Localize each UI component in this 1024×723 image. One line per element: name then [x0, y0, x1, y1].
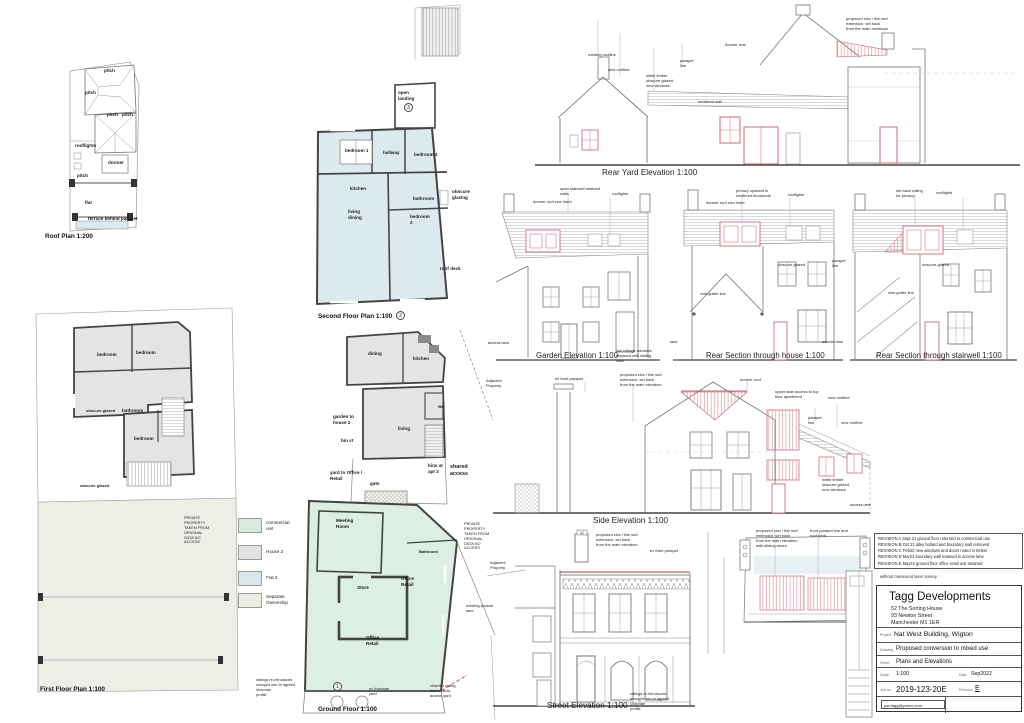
label-gate: gate [370, 481, 379, 487]
legend-label-separate: Separate Ownership [266, 594, 288, 605]
label-bin-st: bin st [341, 438, 353, 444]
label-proposed-zinc: proposed zinc / flat roof extension, set… [846, 16, 888, 31]
divider [877, 627, 1021, 628]
label-living: living [398, 426, 410, 432]
label-access-lane: access lane [822, 339, 843, 344]
street-elevation-drawing [485, 528, 700, 713]
divider [877, 681, 1021, 682]
ground-floor-title: Ground Floor 1:100 [318, 706, 377, 713]
label-proposed-zinc: proposed zinc / flat roof extension, set… [596, 532, 638, 547]
label-frontage: ex frontage yard [369, 686, 389, 696]
label-ex-front-parapet: ex front parapet [650, 548, 678, 553]
label-bathroom: bathroom [413, 196, 434, 202]
label-bedroom1: bedroom 1 [345, 148, 368, 154]
label-kitchen: kitchen [413, 356, 429, 362]
label-new-roofline: new roofline [841, 420, 863, 425]
label-bathroom: bathroom [122, 408, 143, 414]
revision-label: Revision [959, 688, 973, 692]
rear-section-house-drawing [668, 182, 848, 367]
revision-notes: REVISION A Sept 21 ground floor returned… [874, 533, 1023, 569]
divider [877, 655, 1021, 656]
garden-elevation-title: Garden Elevation 1:100 [536, 351, 618, 360]
sheet-value: Plans and Elevations [896, 659, 952, 665]
label-dormer-roof: dormer roof [740, 377, 761, 382]
label-rooflights: rooflights [936, 190, 952, 195]
plan-number-marker: 1 [333, 682, 342, 691]
label-obscure-glazed: obscure glazed [86, 408, 115, 413]
project-value: Nat West Building, Wigton [894, 631, 973, 638]
date-value: Sep2022 [971, 671, 992, 677]
label-terrace: terrace behind parapet [88, 216, 138, 222]
label-white-timber: white timber obscure glazed new windows [822, 477, 849, 492]
second-floor-title: Second Floor Plan 1:100 [318, 313, 392, 320]
label-obscure-glazing: obscure glazing [452, 189, 470, 200]
label-bedroom: bedroom [97, 352, 117, 358]
rear-section-stairwell-drawing [845, 182, 1024, 367]
label-access-lane: access lane [488, 340, 509, 345]
label-parapet-line: parapet line [832, 258, 846, 268]
label-pitch: pitch [122, 112, 133, 118]
label-private-property: PRIVATE PROPERTY TAKEN FROM ORIGINAL DAT… [184, 516, 209, 545]
label-dormer-rear: dormer rear [725, 42, 746, 47]
revision-item: REVISION E May22 ground floor office ret… [878, 561, 1019, 567]
label-pitch: pitch [107, 112, 118, 118]
label-white-timber: white timber obscure glazed new windows [646, 73, 673, 88]
label-privacy-upstand: privacy upstand in rendered blockwork [736, 188, 771, 198]
roof-plan-title: Roof Plan 1:200 [45, 233, 93, 240]
legend-swatch-commercial [238, 518, 262, 533]
email-value: pat.tagg@yahoo.com [884, 703, 922, 708]
label-kitchen: kitchen [350, 186, 366, 192]
label-bedroom: bedroom [134, 436, 154, 442]
street-elevation-title: Street Elevation 1:100 [547, 701, 628, 710]
scale-value: 1:100 [896, 671, 909, 677]
label-ex-front-parapet: ex front parapet [555, 376, 583, 381]
legend-swatch-house2 [238, 545, 262, 560]
company-address: 52 The Sorting House 93 Newton Street Ma… [891, 606, 942, 627]
second-floor-plan-drawing [300, 0, 475, 325]
label-bins: bins at apt 3 [428, 463, 443, 474]
rear-yard-elevation-drawing [530, 5, 1024, 180]
date-label: Date [959, 673, 967, 677]
rear-section-house-title: Rear Section through house 1:100 [706, 351, 825, 360]
label-parapet-line: parapet line [808, 415, 822, 425]
label-garden-footnote: low cottage windows replaced with slidin… [616, 349, 652, 364]
legend-label-commercial: commercial unit [266, 520, 289, 531]
label-wc: wc [438, 404, 444, 410]
label-rendered-wall: rendered wall [698, 99, 722, 104]
label-pitch: pitch [77, 173, 88, 179]
side-elevation-drawing [485, 362, 875, 527]
label-chamfer: chamfer railing line to allow access yar… [430, 684, 456, 699]
label-private-property: PRIVATE PROPERTY TAKEN FROM ORIGINAL DAT… [464, 522, 489, 551]
label-dormer: dormer [108, 160, 124, 166]
company-name: Tagg Developments [889, 591, 991, 603]
label-adjacent-property: Adjacent Property [490, 560, 506, 570]
job-number: 2019-123-20E [896, 685, 947, 694]
project-label: Project [880, 633, 891, 637]
first-floor-plan-drawing [28, 302, 240, 697]
label-obscure-glazed: obscure glazed [80, 483, 109, 488]
label-parapet-line: parapet line [680, 58, 694, 68]
label-bathroom: Bathroom [419, 549, 438, 554]
first-floor-title: First Floor Plan 1:100 [40, 686, 105, 693]
drawing-value: Proposed conversion to mixed use [896, 646, 988, 652]
garden-elevation-drawing [488, 182, 668, 367]
label-obscure-glazed: obscure glazed [778, 262, 805, 267]
label-new-roofline: new roofline [828, 395, 850, 400]
label-proposed-zinc-sliding: proposed zinc / flat roof extension, set… [756, 528, 798, 548]
divider [877, 696, 1021, 697]
label-rear-gutter: rear gutter line [888, 290, 914, 295]
label-open-stairwell: open stairwell retained walls [560, 186, 600, 196]
sheet-label: Sheet [880, 661, 889, 665]
label-roof-deck: roof deck [440, 266, 461, 272]
label-proposed-zinc: proposed zinc / flat roof extension, set… [620, 372, 662, 387]
drawing-label: Drawing [880, 648, 893, 652]
label-railings: railings re-introduced wrought iron to a… [256, 678, 295, 698]
revision-value: E [975, 685, 980, 692]
label-set-back-railing: set back railing for privacy [896, 188, 923, 198]
label-pitch: pitch [85, 90, 96, 96]
label-upper-stair: upper stair access to top floor apartmen… [775, 389, 819, 399]
label-existing-access: existing access lane [466, 603, 493, 613]
label-living-dining: living dining [348, 209, 362, 220]
legend-label-flat3: Flat 3 [266, 575, 278, 581]
label-obscure-glazed: obscure glazed [922, 262, 949, 267]
drawing-sheet: pitch pitch pitch pitch rooflights dorme… [0, 0, 1024, 723]
label-meeting-room: Meeting Room [336, 518, 353, 529]
label-new-roofline: new roofline [608, 67, 630, 72]
job-label: Job no [880, 688, 891, 692]
label-garden-house2: garden to house 2 [333, 414, 354, 425]
label-dining: dining [368, 351, 382, 357]
label-flat: flat [85, 200, 92, 206]
label-rooflights: rooflights [75, 143, 96, 149]
landing-number-marker: 3 [404, 103, 413, 112]
label-rooflights: rooflights [612, 191, 628, 196]
label-existing-roofline: existing roofline [588, 52, 616, 57]
email-box: pat.tagg@yahoo.com [881, 700, 945, 709]
rear-section-stairwell-title: Rear Section through stairwell 1:100 [876, 351, 1002, 360]
label-access-lane: access lane [850, 502, 871, 507]
label-yard-office: yard to Office / Retail [330, 470, 362, 481]
divider [945, 696, 946, 713]
label-adjacent-property: Adjacent Property [486, 378, 502, 388]
label-bedroom3: bedroom 3 [414, 152, 437, 158]
plan-number-marker: 2 [396, 311, 405, 320]
scale-label: Scale [880, 673, 889, 677]
rear-yard-elevation-title: Rear Yard Elevation 1:100 [602, 168, 697, 177]
lane-detail-drawing [845, 570, 873, 718]
label-office-retail: Office Retail [366, 635, 379, 646]
label-front-parapet: front parapet line and roof deck [810, 528, 848, 538]
label-bedroom2: bedroom 2 [410, 214, 430, 225]
label-rear-gutter: rear gutter line [700, 291, 726, 296]
survey-note: without measured laser survey [880, 574, 937, 579]
side-elevation-title: Side Elevation 1:100 [593, 516, 668, 525]
divider [877, 642, 1021, 643]
label-dormer-roof: dormer roof zinc lined [533, 199, 571, 204]
label-lane: lane [670, 339, 678, 344]
label-open-landing: open landing [398, 90, 414, 101]
title-block: Tagg Developments 52 The Sorting House 9… [876, 585, 1022, 712]
label-bedroom: bedroom [136, 350, 156, 356]
label-pitch: pitch [104, 68, 115, 74]
label-hallway: hallway [383, 150, 400, 156]
legend-swatch-flat3 [238, 571, 262, 586]
label-railings: railings re-introduced wrought iron to a… [630, 692, 669, 712]
label-dormer-roof: dormer roof zinc lined [706, 200, 744, 205]
label-shared-access: shared access [450, 464, 468, 478]
legend-label-house2: House 2 [266, 549, 283, 555]
legend-swatch-separate [238, 593, 262, 608]
label-store: Store [357, 585, 369, 591]
label-rooflights: rooflights [788, 192, 804, 197]
divider [877, 667, 1021, 668]
label-office-retail: Office Retail [401, 576, 414, 587]
